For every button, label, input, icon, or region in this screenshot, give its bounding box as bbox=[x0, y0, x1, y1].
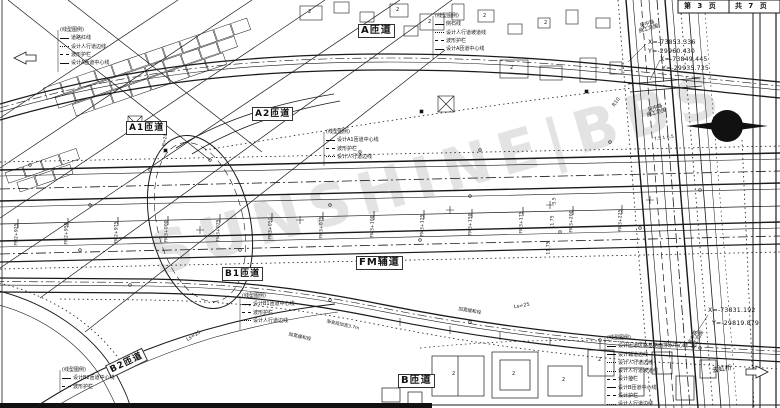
dim-11-75-a: 11.75 bbox=[551, 215, 556, 228]
storey-mark: 2 bbox=[483, 14, 486, 19]
dim-11-75-b: 11.75 bbox=[547, 241, 552, 254]
station-label: FM2+975 bbox=[115, 221, 120, 243]
storey-mark: 2 bbox=[452, 372, 455, 377]
page-number: 第 3 页 bbox=[684, 3, 718, 10]
station-label: FM3+050 bbox=[269, 217, 274, 239]
station-label: FM3+075 bbox=[320, 216, 325, 238]
main-road-band bbox=[0, 146, 780, 269]
storey-mark: 2 bbox=[562, 378, 565, 383]
coord-p3-x: X=-73831.192 bbox=[708, 308, 756, 314]
storey-mark: 2 bbox=[308, 10, 311, 15]
label-ramp-a: A匝道 bbox=[358, 24, 395, 38]
label-ramp-b: B匝道 bbox=[398, 374, 435, 388]
station-label: FM3+025 bbox=[217, 219, 222, 241]
station-label: FM3+125 bbox=[421, 214, 426, 236]
right-arrow-icon bbox=[746, 366, 768, 378]
legend-topleft: (线型图例) 道路红线 设计人行道边线 波形护栏 设计A匝道中心线 bbox=[60, 26, 109, 67]
station-label: FM3+150 bbox=[469, 213, 474, 235]
storey-mark: 2 bbox=[428, 20, 431, 25]
storey-mark: 2 bbox=[630, 378, 633, 383]
dim-3-5: 3.5 bbox=[553, 197, 558, 204]
storey-mark: 2 bbox=[512, 372, 515, 377]
label-ramp-a1: A1匝道 bbox=[126, 121, 167, 135]
label-ramp-b1: B1匝道 bbox=[222, 267, 263, 281]
legend-b2-ramp: (线型图例) 设计B2匝道中心线 波形护栏 bbox=[62, 366, 115, 391]
label-ramp-a2: A2匝道 bbox=[252, 107, 293, 121]
legend-a1-ramp: (线型图例) 设计A1匝道中心线 波形护栏 设计人行道边线 bbox=[326, 128, 379, 161]
station-label: FM3+100 bbox=[371, 215, 376, 237]
page-total: 共 7 页 bbox=[735, 3, 769, 10]
coord-p1-y: Y=-29960.430 bbox=[648, 49, 695, 55]
station-label: FM2+950 bbox=[65, 222, 70, 244]
legend-b1-ramp: (线型图例) 设计B1匝道中心线 波形护栏 设计人行道边线 bbox=[242, 292, 295, 325]
cad-plan-canvas: SUNSHINE|BBS bbox=[0, 0, 780, 408]
station-label: FM3+225 bbox=[619, 209, 624, 231]
station-label: FM3+200 bbox=[570, 210, 575, 232]
label-fm-frontage: FM辅道 bbox=[356, 256, 403, 270]
storey-mark: 2 bbox=[598, 358, 601, 363]
coord-p3-y: Y=-29819.879 bbox=[712, 321, 759, 327]
left-arrow-icon bbox=[14, 52, 36, 64]
storey-mark: 2 bbox=[510, 66, 513, 71]
legend-b-ramp-right: (线型图例) 设计匝道区路基路面排水中心线 设计辅道边线 设计人行道边线 设计人… bbox=[607, 334, 688, 408]
storey-mark: 2 bbox=[396, 8, 399, 13]
coord-p2-x: X=-73849.445 bbox=[660, 57, 708, 63]
coord-p1-x: X=-73853.336 bbox=[648, 40, 696, 46]
station-label: FM3+175 bbox=[520, 211, 525, 233]
a1-loop-ramp bbox=[131, 125, 268, 319]
legend-a-ramp: (线型图例) 侧石线 设计人行道坡道线 波形护栏 设计A匝道中心线 bbox=[435, 12, 486, 53]
storey-mark: 2 bbox=[544, 21, 547, 26]
station-label: FM3+000 bbox=[165, 220, 170, 242]
station-label: FM2+925 bbox=[15, 223, 20, 245]
coord-p2-y: Y=-29935.735 bbox=[662, 66, 709, 72]
north-compass-icon bbox=[686, 110, 768, 142]
